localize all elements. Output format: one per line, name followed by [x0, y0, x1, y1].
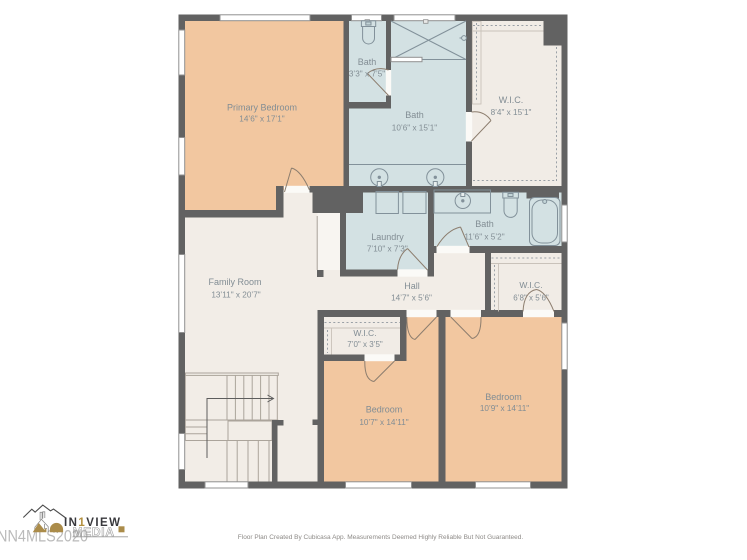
- svg-text:W.I.C.: W.I.C.: [519, 280, 542, 290]
- svg-text:10’6" x 15’1": 10’6" x 15’1": [392, 123, 438, 132]
- svg-text:6’8" x 5’6": 6’8" x 5’6": [513, 294, 549, 303]
- svg-text:11’6" x 5’2": 11’6" x 5’2": [464, 232, 504, 241]
- svg-text:Primary Bedroom: Primary Bedroom: [227, 103, 297, 113]
- svg-text:7’10" x 7’3": 7’10" x 7’3": [367, 244, 408, 253]
- svg-text:Bath: Bath: [358, 57, 377, 67]
- svg-text:3’3" x 7’5": 3’3" x 7’5": [349, 69, 385, 78]
- svg-text:14’7" x 5’6": 14’7" x 5’6": [391, 293, 432, 302]
- svg-text:Floor Plan Created By Cubicasa: Floor Plan Created By Cubicasa App. Meas…: [238, 534, 524, 541]
- svg-text:14’6" x 17’1": 14’6" x 17’1": [239, 114, 285, 123]
- svg-text:10’7" x 14’11": 10’7" x 14’11": [359, 418, 408, 427]
- svg-text:7’0" x 3’5": 7’0" x 3’5": [347, 340, 383, 349]
- svg-text:Bath: Bath: [405, 110, 424, 120]
- svg-text:Family Room: Family Room: [208, 277, 261, 287]
- svg-text:Bath: Bath: [475, 219, 494, 229]
- svg-text:W.I.C.: W.I.C.: [353, 328, 376, 338]
- svg-text:Bedroom: Bedroom: [485, 392, 522, 402]
- svg-text:Hall: Hall: [404, 281, 420, 291]
- svg-text:13’11" x 20’7": 13’11" x 20’7": [211, 291, 260, 300]
- svg-text:8’4" x 15’1": 8’4" x 15’1": [491, 108, 532, 117]
- svg-text:W.I.C.: W.I.C.: [499, 95, 524, 105]
- svg-text:Bedroom: Bedroom: [366, 405, 403, 415]
- svg-text:Laundry: Laundry: [371, 232, 404, 242]
- svg-text:10’9" x 14’11": 10’9" x 14’11": [480, 404, 529, 413]
